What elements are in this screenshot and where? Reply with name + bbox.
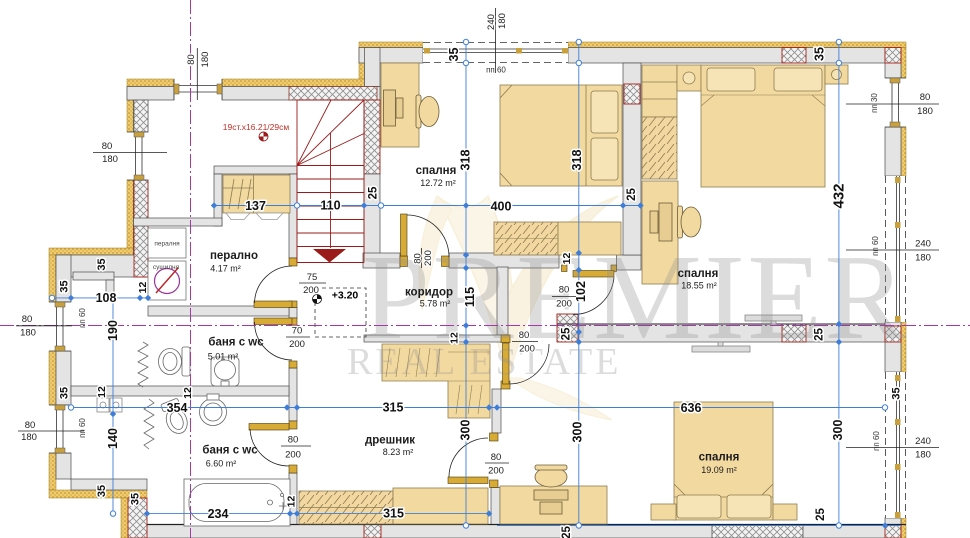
- svg-text:80: 80: [413, 253, 424, 264]
- svg-text:180: 180: [102, 154, 118, 165]
- svg-text:300: 300: [571, 422, 585, 443]
- svg-text:18.55 m²: 18.55 m²: [681, 281, 717, 291]
- svg-text:200: 200: [285, 450, 301, 461]
- svg-text:108: 108: [96, 291, 117, 305]
- svg-text:180: 180: [915, 450, 931, 461]
- svg-text:180: 180: [915, 253, 931, 264]
- svg-text:80: 80: [559, 285, 570, 296]
- svg-text:35: 35: [891, 387, 903, 399]
- svg-text:137: 137: [245, 199, 266, 213]
- svg-text:пп 60: пп 60: [872, 431, 881, 451]
- svg-text:80: 80: [288, 435, 299, 446]
- svg-text:200: 200: [423, 250, 434, 266]
- svg-text:12: 12: [96, 386, 108, 398]
- svg-text:25: 25: [815, 508, 827, 521]
- svg-text:115: 115: [463, 287, 477, 307]
- svg-text:пп 60: пп 60: [486, 66, 506, 75]
- svg-text:12: 12: [286, 496, 298, 508]
- svg-text:35: 35: [96, 258, 108, 270]
- svg-text:4.17 m²: 4.17 m²: [210, 264, 241, 274]
- svg-text:25: 25: [814, 328, 826, 341]
- svg-text:сушилня: сушилня: [153, 264, 180, 271]
- svg-text:80: 80: [25, 420, 36, 431]
- svg-text:75: 75: [307, 272, 318, 283]
- svg-text:102: 102: [574, 281, 588, 302]
- svg-text:+3.20: +3.20: [332, 290, 359, 302]
- svg-text:180: 180: [917, 106, 933, 117]
- svg-text:200: 200: [488, 466, 504, 477]
- svg-text:35: 35: [130, 493, 142, 505]
- svg-text:315: 315: [383, 507, 404, 521]
- svg-text:баня с wc: баня с wc: [202, 445, 258, 457]
- svg-text:240: 240: [915, 239, 931, 250]
- svg-text:80: 80: [519, 330, 530, 341]
- svg-text:35: 35: [447, 48, 461, 62]
- svg-text:180: 180: [497, 13, 508, 29]
- svg-text:спалня: спалня: [678, 268, 719, 280]
- svg-text:300: 300: [459, 420, 473, 441]
- svg-text:315: 315: [383, 401, 404, 415]
- svg-text:80: 80: [186, 54, 197, 65]
- svg-text:пп 30: пп 30: [870, 93, 879, 113]
- svg-text:636: 636: [681, 401, 702, 415]
- svg-text:пп 60: пп 60: [871, 236, 880, 256]
- svg-text:110: 110: [320, 199, 340, 213]
- svg-text:6.60 m²: 6.60 m²: [206, 459, 237, 469]
- svg-text:19.09 m²: 19.09 m²: [701, 465, 737, 475]
- svg-text:200: 200: [556, 299, 572, 310]
- svg-text:190: 190: [106, 320, 120, 341]
- svg-text:спалня: спалня: [416, 165, 457, 177]
- svg-text:70: 70: [292, 326, 303, 337]
- svg-text:35: 35: [96, 485, 108, 497]
- svg-text:12: 12: [561, 253, 573, 265]
- svg-text:180: 180: [200, 52, 211, 68]
- svg-text:12.72 m²: 12.72 m²: [420, 178, 456, 188]
- svg-text:пп 60: пп 60: [78, 418, 87, 438]
- svg-text:200: 200: [289, 339, 305, 350]
- svg-text:354: 354: [167, 401, 188, 415]
- svg-text:перално: перално: [210, 250, 258, 262]
- svg-text:25: 25: [626, 188, 638, 201]
- svg-text:19ст.х16.21/29см: 19ст.х16.21/29см: [223, 122, 290, 132]
- svg-text:25: 25: [561, 327, 573, 340]
- svg-text:180: 180: [20, 328, 36, 339]
- svg-text:12: 12: [182, 387, 194, 399]
- svg-text:180: 180: [21, 432, 37, 443]
- svg-text:25: 25: [561, 526, 573, 538]
- svg-text:400: 400: [491, 200, 512, 214]
- svg-text:5.78 m²: 5.78 m²: [420, 299, 451, 309]
- svg-text:318: 318: [459, 150, 473, 171]
- svg-text:240: 240: [486, 14, 497, 30]
- svg-text:80: 80: [22, 314, 33, 325]
- svg-text:5.01 m²: 5.01 m²: [208, 352, 239, 362]
- svg-text:140: 140: [106, 428, 120, 449]
- svg-text:пп 60: пп 60: [78, 308, 87, 328]
- svg-text:25: 25: [368, 186, 380, 199]
- svg-text:спалня: спалня: [699, 452, 740, 464]
- svg-text:240: 240: [915, 436, 931, 447]
- svg-text:318: 318: [570, 150, 584, 171]
- svg-text:300: 300: [831, 420, 845, 441]
- svg-text:8.23 m²: 8.23 m²: [383, 447, 414, 457]
- svg-text:200: 200: [519, 344, 535, 355]
- svg-text:35: 35: [59, 280, 71, 292]
- svg-text:200: 200: [303, 285, 319, 296]
- svg-text:80: 80: [102, 141, 113, 152]
- svg-text:80: 80: [491, 452, 502, 463]
- svg-text:35: 35: [59, 387, 71, 399]
- svg-text:коридор: коридор: [405, 287, 453, 299]
- svg-text:80: 80: [920, 92, 931, 103]
- svg-text:12: 12: [449, 332, 461, 344]
- svg-text:REAL ESTATE: REAL ESTATE: [347, 341, 621, 383]
- svg-text:432: 432: [831, 183, 848, 208]
- svg-text:дрешник: дрешник: [365, 435, 415, 447]
- svg-text:баня с wc: баня с wc: [208, 337, 264, 349]
- svg-text:12: 12: [137, 282, 149, 294]
- svg-text:35: 35: [813, 47, 827, 61]
- svg-text:пералня: пералня: [154, 241, 180, 248]
- svg-text:234: 234: [208, 507, 229, 521]
